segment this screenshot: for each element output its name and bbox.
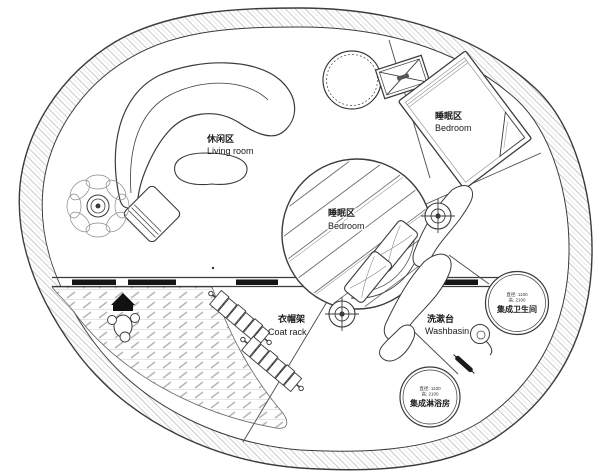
bathroom-pod-dim-1: 直径: 1100 — [506, 291, 528, 297]
shower-pod-dim-1: 直径: 1100 — [419, 385, 441, 391]
floor-plan-drawing: 直径: 1100 高: 2100 集成卫生间 直径: 1100 高: 2100 … — [0, 0, 611, 473]
round-table — [323, 51, 381, 109]
plant-icon — [67, 175, 130, 237]
bathroom-pod-label: 集成卫生间 — [496, 304, 537, 314]
coat-rack-label-en: Coat rack — [268, 327, 307, 337]
bathroom-pod-dim-2: 高: 2100 — [508, 297, 526, 304]
shower-pod-label: 集成淋浴房 — [409, 398, 450, 408]
bedroom-upper-label-cn: 睡眠区 — [435, 110, 462, 121]
bedroom-center-label-en: Bedroom — [328, 221, 365, 231]
toilet-icon — [471, 325, 492, 356]
coat-rack-label-cn: 衣帽架 — [278, 313, 305, 324]
washbasin-label-cn: 洗漱台 — [427, 313, 454, 324]
bedroom-upper-label-en: Bedroom — [435, 123, 472, 133]
curved-sofa — [115, 63, 294, 208]
shower-pod: 直径: 1100 高: 2100 集成淋浴房 — [400, 367, 460, 427]
living-room-label-cn: 休闲区 — [206, 133, 234, 144]
glazing-segment — [236, 280, 278, 286]
bathroom-pod: 直径: 1100 高: 2100 集成卫生间 — [486, 272, 549, 335]
bedroom-center-label-cn: 睡眠区 — [328, 207, 355, 218]
shower-pod-dim-2: 高: 2100 — [421, 391, 439, 398]
dot-mark — [212, 267, 214, 269]
glazing-segment — [72, 280, 116, 286]
glazing-segment — [128, 280, 176, 286]
coffee-table — [175, 153, 247, 185]
floor-plan-canvas: 直径: 1100 高: 2100 集成卫生间 直径: 1100 高: 2100 … — [0, 0, 611, 473]
washbasin-label-en: Washbasin — [425, 326, 469, 336]
living-room-label-en: Living room — [207, 146, 254, 156]
